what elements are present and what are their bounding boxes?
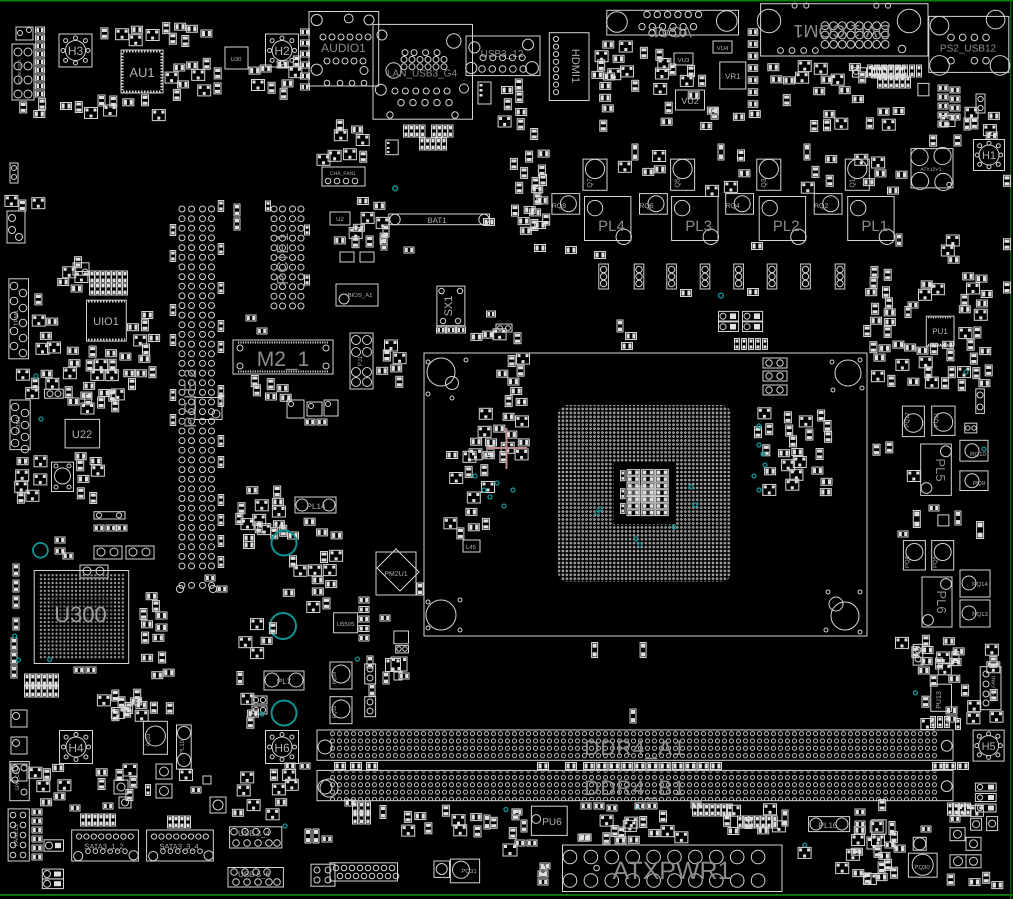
svg-text:HD_AUDIO1: HD_AUDIO1 (17, 59, 22, 85)
svg-text:U300: U300 (54, 602, 107, 627)
svg-text:Q1: Q1 (849, 178, 856, 187)
svg-text:RQ13: RQ13 (972, 611, 988, 618)
svg-text:COM1: COM1 (15, 416, 22, 434)
svg-text:H4: H4 (68, 741, 84, 755)
svg-text:PQ34: PQ34 (332, 671, 338, 684)
svg-text:VGA1: VGA1 (652, 23, 692, 40)
svg-text:AU1: AU1 (129, 65, 154, 80)
svg-text:PL2: PL2 (773, 218, 800, 235)
svg-text:H1: H1 (982, 150, 996, 162)
svg-text:PQ31: PQ31 (461, 868, 477, 875)
svg-text:PL3: PL3 (685, 218, 712, 235)
svg-text:H2: H2 (274, 44, 290, 58)
svg-text:HDMI1: HDMI1 (569, 49, 581, 83)
svg-text:PJ1: PJ1 (357, 355, 364, 366)
svg-text:PQ12: PQ12 (904, 412, 911, 428)
svg-text:ATXPWR1: ATXPWR1 (613, 857, 732, 885)
svg-text:M2_1: M2_1 (257, 348, 310, 371)
svg-text:VU3: VU3 (678, 57, 690, 64)
svg-text:BIOS_A1: BIOS_A1 (347, 292, 373, 299)
svg-text:VR1: VR1 (725, 72, 741, 81)
svg-text:PL5: PL5 (933, 458, 948, 481)
svg-text:PQ8: PQ8 (904, 555, 911, 568)
svg-text:PQ5: PQ5 (932, 555, 939, 568)
svg-text:LAN_USB3_G4: LAN_USB3_G4 (387, 69, 457, 80)
svg-text:PS2_USB12: PS2_USB12 (940, 43, 997, 54)
svg-text:PL10: PL10 (179, 739, 186, 754)
svg-text:PQ32: PQ32 (332, 705, 338, 718)
svg-text:PANEL1: PANEL1 (13, 823, 20, 846)
svg-text:PM2U1: PM2U1 (384, 571, 407, 578)
svg-text:Q7: Q7 (587, 178, 594, 187)
svg-text:PL6: PL6 (934, 590, 949, 613)
svg-text:U22: U22 (72, 429, 92, 441)
svg-text:PL14: PL14 (307, 502, 326, 511)
svg-text:PL4: PL4 (598, 218, 625, 235)
svg-text:Q5: Q5 (675, 178, 682, 187)
svg-text:CHA_FAN1: CHA_FAN1 (330, 171, 356, 177)
svg-text:PQ33: PQ33 (146, 733, 152, 746)
svg-text:RQ2: RQ2 (814, 203, 829, 210)
svg-text:UIO1: UIO1 (93, 316, 119, 328)
svg-text:PU13: PU13 (936, 691, 943, 709)
svg-text:RQ10: RQ10 (970, 451, 986, 458)
svg-text:RQ9: RQ9 (973, 480, 986, 487)
svg-text:L45: L45 (466, 544, 477, 551)
svg-text:USB 3_4: USB 3_4 (238, 829, 271, 838)
svg-text:TPM1: TPM1 (13, 309, 20, 326)
svg-text:BAT1: BAT1 (427, 216, 447, 225)
svg-text:PQ11: PQ11 (933, 412, 940, 428)
svg-text:VU4: VU4 (717, 45, 729, 52)
svg-text:SPK_C1: SPK_C1 (15, 771, 21, 790)
svg-text:PL1: PL1 (861, 218, 888, 235)
svg-text:DDR4_B1: DDR4_B1 (584, 777, 686, 800)
svg-text:PQ30: PQ30 (914, 864, 930, 871)
svg-text:PL16: PL16 (819, 821, 838, 830)
svg-text:PL7: PL7 (277, 677, 292, 686)
svg-text:RQ4: RQ4 (725, 203, 740, 210)
svg-text:U5505: U5505 (337, 621, 355, 628)
svg-text:DVI1 COM1: DVI1 COM1 (793, 21, 890, 41)
svg-text:Q3: Q3 (761, 178, 768, 187)
svg-text:H6: H6 (274, 741, 290, 755)
svg-text:SX1: SX1 (443, 296, 455, 317)
svg-text:H5: H5 (982, 741, 996, 753)
svg-text:RQ8: RQ8 (552, 203, 567, 210)
svg-text:RQ14: RQ14 (972, 581, 988, 588)
svg-text:H3: H3 (68, 44, 84, 58)
svg-text:U30: U30 (230, 56, 242, 63)
svg-text:PU6: PU6 (542, 817, 562, 828)
svg-text:PU1: PU1 (932, 327, 948, 336)
svg-text:PCIE1: PCIE1 (275, 231, 292, 285)
svg-text:RQ6: RQ6 (639, 203, 654, 210)
svg-text:ATX12V1: ATX12V1 (920, 167, 941, 173)
svg-text:U2: U2 (336, 216, 344, 223)
svg-text:AUDIO1: AUDIO1 (321, 41, 366, 55)
svg-text:DDR4_A1: DDR4_A1 (584, 737, 686, 760)
